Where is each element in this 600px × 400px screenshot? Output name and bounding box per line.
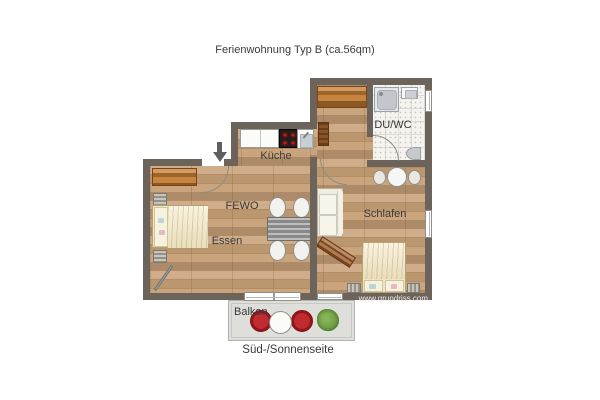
wall-divider <box>310 157 317 300</box>
entry-arrow-head-icon <box>213 152 227 162</box>
drain-icon <box>379 92 383 96</box>
nightstand-bedroom-right <box>407 283 420 293</box>
bathroom-door-swing <box>373 135 399 161</box>
kitchen-sink <box>297 129 314 149</box>
bedroom-door-swing <box>320 158 347 185</box>
wall-hall-left <box>310 78 317 129</box>
sofa-cushion <box>319 194 337 215</box>
sofa-back <box>337 191 343 234</box>
balcony-chair-right <box>291 310 313 332</box>
pillow-speck-pink <box>159 230 165 235</box>
label-balcony: Balkon <box>234 306 294 318</box>
kitchen-counter <box>240 129 279 148</box>
bedroom-chair <box>373 170 386 185</box>
sofa-cushion <box>319 215 337 236</box>
bathroom-window <box>425 90 432 112</box>
pillow-speck-pink <box>391 284 397 289</box>
bed-bedroom-pillow <box>385 280 404 292</box>
label-kitchen: Küche <box>246 150 306 162</box>
burner-icon <box>290 140 296 146</box>
label-bedroom: Schlafen <box>355 208 415 220</box>
wall-bathroom-bottom <box>367 160 432 167</box>
burner-icon <box>290 132 296 138</box>
label-dining: Essen <box>197 235 257 247</box>
toilet <box>406 147 421 160</box>
shower <box>374 87 399 112</box>
bed-bedroom-duvet <box>363 243 405 279</box>
balcony-door <box>244 292 301 301</box>
caption-south-side: Süd-/Sonnenseite <box>198 344 378 356</box>
page-title: Ferienwohnung Typ B (ca.56qm) <box>175 44 415 56</box>
dining-table <box>267 217 315 241</box>
sofa <box>317 188 343 237</box>
sink-basin <box>405 90 417 99</box>
plant-icon <box>317 309 339 331</box>
dining-chair <box>293 240 310 261</box>
bedroom-window-east <box>425 210 432 238</box>
bathroom-sink <box>401 87 418 99</box>
wall-kitchen-top <box>231 122 317 129</box>
entry-door-swing <box>202 166 229 193</box>
bed-bedroom <box>362 242 406 293</box>
watermark: www.grundriss.com <box>346 294 428 303</box>
bedroom-window-south <box>317 293 343 300</box>
bed-living-pillow <box>154 207 168 247</box>
bedroom-chair <box>408 170 421 185</box>
label-living: FEWO <box>212 200 272 212</box>
dining-chair <box>269 240 286 261</box>
nightstand-bedroom-left <box>347 283 361 293</box>
bedroom-round-table <box>387 167 407 187</box>
burner-icon <box>282 132 288 138</box>
pillow-speck-blue <box>158 218 164 223</box>
label-bathroom: DU/WC <box>363 119 423 131</box>
stove <box>279 129 298 148</box>
bed-bedroom-pillow <box>364 280 383 292</box>
dining-chair <box>293 197 310 218</box>
sink-basin <box>300 134 313 148</box>
nightstand-living-bottom <box>153 250 167 263</box>
floorplan-canvas: Ferienwohnung Typ B (ca.56qm) <box>0 0 600 400</box>
wall-top <box>310 78 432 85</box>
wardrobe <box>317 86 367 108</box>
pillow-speck-blue <box>369 284 376 289</box>
sideboard <box>152 168 197 186</box>
wall-left <box>143 159 150 300</box>
hall-cabinet <box>318 122 329 146</box>
burner-icon <box>282 140 288 146</box>
